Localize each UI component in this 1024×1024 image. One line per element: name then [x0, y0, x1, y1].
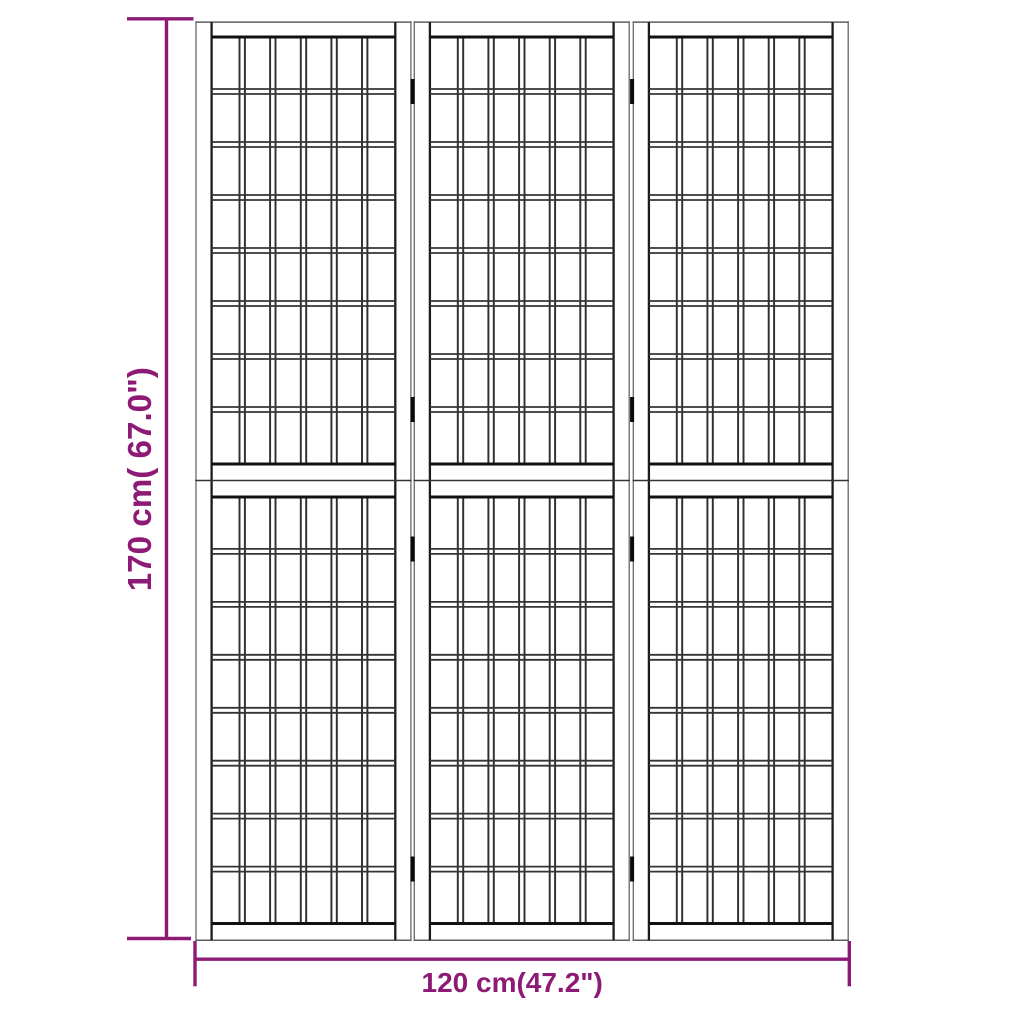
svg-text:120 cm(47.2"): 120 cm(47.2") — [422, 967, 603, 998]
svg-text:170 cm( 67.0"): 170 cm( 67.0") — [122, 367, 159, 591]
